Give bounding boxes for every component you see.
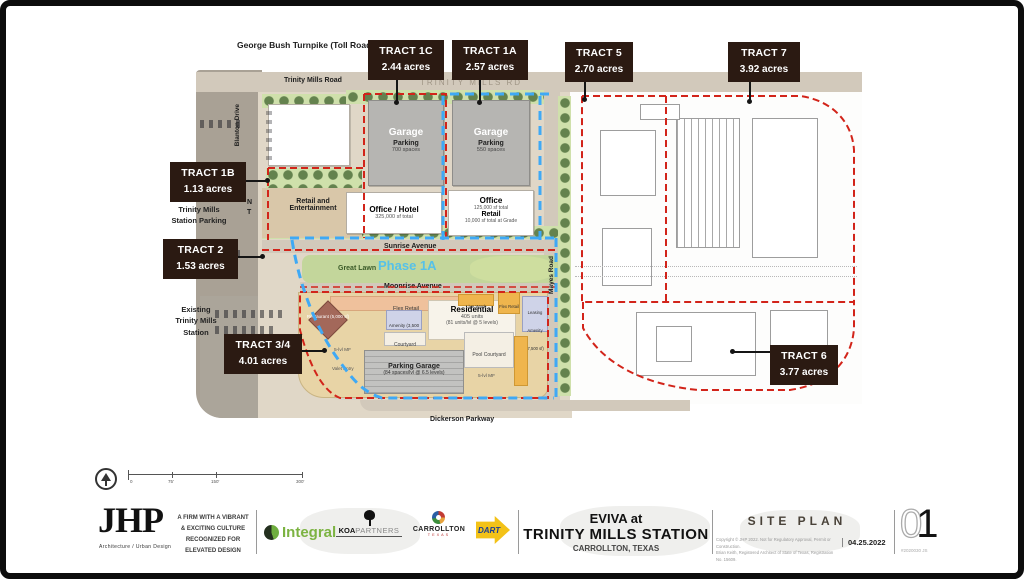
jhp-motto: A FIRM WITH A VIBRANT & EXCITING CULTURE…: [172, 513, 254, 557]
sheet-number: 01: [900, 502, 939, 546]
tract-1a-callout: TRACT 1A2.57 acres: [452, 40, 528, 80]
tract-3-4-callout: TRACT 3/44.01 acres: [224, 334, 302, 374]
footer-divider: [256, 510, 257, 554]
leader-line: [302, 350, 324, 352]
north-arrow-icon: [95, 468, 117, 490]
jhp-tagline: Architecture / Urban Design: [99, 544, 171, 550]
leader-dot: [477, 100, 482, 105]
leader-dot: [265, 178, 270, 183]
integral-logo: Integral: [264, 524, 336, 541]
sheet-name: SITE PLAN: [722, 514, 872, 528]
sheet-date: 04.25.2022: [842, 538, 886, 547]
tract-2-callout: TRACT 21.53 acres: [163, 239, 238, 279]
site-plan-sheet: George Bush Turnpike (Toll Road) Trinity…: [0, 0, 1024, 579]
footer-divider: [894, 510, 895, 554]
boundary-lines-svg: [160, 60, 870, 430]
tract-6-callout: TRACT 63.77 acres: [770, 345, 838, 385]
scale-tick-75: 75': [168, 479, 174, 484]
copyright-block: Copyright © JHP 2022. Not for Regulatory…: [716, 537, 838, 564]
leader-dot: [260, 254, 265, 259]
scale-tick-300: 300': [296, 479, 304, 484]
leader-line: [238, 256, 262, 258]
dart-logo: DART: [476, 516, 510, 544]
project-title-block: EVIVA at TRINITY MILLS STATION CARROLLTO…: [522, 511, 710, 553]
koa-partners-logo: KOAPARTNERS: [336, 510, 402, 537]
footer-divider: [712, 510, 713, 554]
scale-bar: 0 75' 150' 300': [128, 470, 303, 488]
jhp-logo: JHP: [98, 502, 163, 538]
project-title-line1: EVIVA at: [522, 511, 710, 526]
george-bush-turnpike-label: George Bush Turnpike (Toll Road): [237, 40, 374, 50]
leader-dot: [730, 349, 735, 354]
scale-tick-150: 150': [211, 479, 219, 484]
leader-line: [246, 180, 266, 182]
project-number: #2020030 JS: [901, 548, 928, 553]
tract-1c-callout: TRACT 1C2.44 acres: [368, 40, 444, 80]
leader-dot: [747, 99, 752, 104]
leader-dot: [582, 97, 587, 102]
koa-tree-icon: [336, 510, 402, 526]
carrollton-swirl-icon: [408, 511, 470, 526]
leader-line: [733, 351, 770, 353]
leader-dot: [322, 348, 327, 353]
leader-dot: [394, 100, 399, 105]
project-title-line2: TRINITY MILLS STATION: [522, 526, 710, 543]
tract-5-callout: TRACT 52.70 acres: [565, 42, 633, 82]
project-title-line3: CARROLLTON, TEXAS: [522, 544, 710, 553]
scale-tick-0: 0: [130, 479, 133, 484]
footer-divider: [518, 510, 519, 554]
tract-1b-callout: TRACT 1B1.13 acres: [170, 162, 246, 202]
carrollton-logo: CARROLLTON TEXAS: [408, 511, 470, 537]
integral-globe-icon: [264, 525, 279, 540]
tract-7-callout: TRACT 73.92 acres: [728, 42, 800, 82]
